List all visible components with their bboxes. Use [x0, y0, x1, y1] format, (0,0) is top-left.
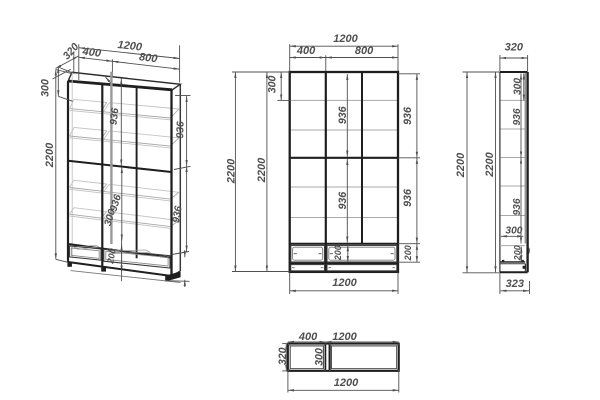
svg-text:300: 300: [505, 226, 522, 237]
svg-text:2200: 2200: [44, 142, 56, 168]
svg-text:300: 300: [267, 75, 279, 93]
svg-text:2200: 2200: [226, 158, 238, 184]
svg-text:936: 936: [337, 192, 349, 210]
svg-text:400: 400: [296, 45, 316, 57]
svg-text:936: 936: [512, 198, 523, 215]
svg-text:936: 936: [337, 106, 349, 124]
svg-text:936: 936: [109, 107, 122, 125]
svg-text:300: 300: [314, 348, 326, 366]
svg-text:320: 320: [505, 42, 524, 54]
svg-text:800: 800: [355, 45, 374, 57]
svg-text:300: 300: [512, 78, 523, 95]
svg-text:1200: 1200: [332, 331, 357, 343]
svg-text:936: 936: [175, 121, 187, 139]
svg-text:323: 323: [506, 278, 524, 290]
svg-text:936: 936: [512, 108, 523, 125]
svg-text:1200: 1200: [333, 33, 358, 45]
svg-text:800: 800: [138, 51, 159, 65]
svg-text:2200: 2200: [455, 152, 467, 178]
svg-text:1200: 1200: [334, 377, 359, 389]
svg-text:936: 936: [402, 107, 414, 125]
svg-text:200: 200: [513, 245, 523, 261]
svg-text:300: 300: [40, 79, 52, 97]
svg-text:320: 320: [277, 347, 289, 365]
svg-text:200: 200: [333, 245, 343, 261]
svg-text:400: 400: [298, 331, 318, 343]
svg-text:2200: 2200: [484, 151, 496, 177]
svg-text:936: 936: [402, 189, 414, 207]
svg-text:1200: 1200: [332, 277, 357, 289]
svg-text:2200: 2200: [256, 157, 268, 183]
svg-text:400: 400: [81, 46, 103, 60]
svg-text:200: 200: [403, 245, 413, 261]
